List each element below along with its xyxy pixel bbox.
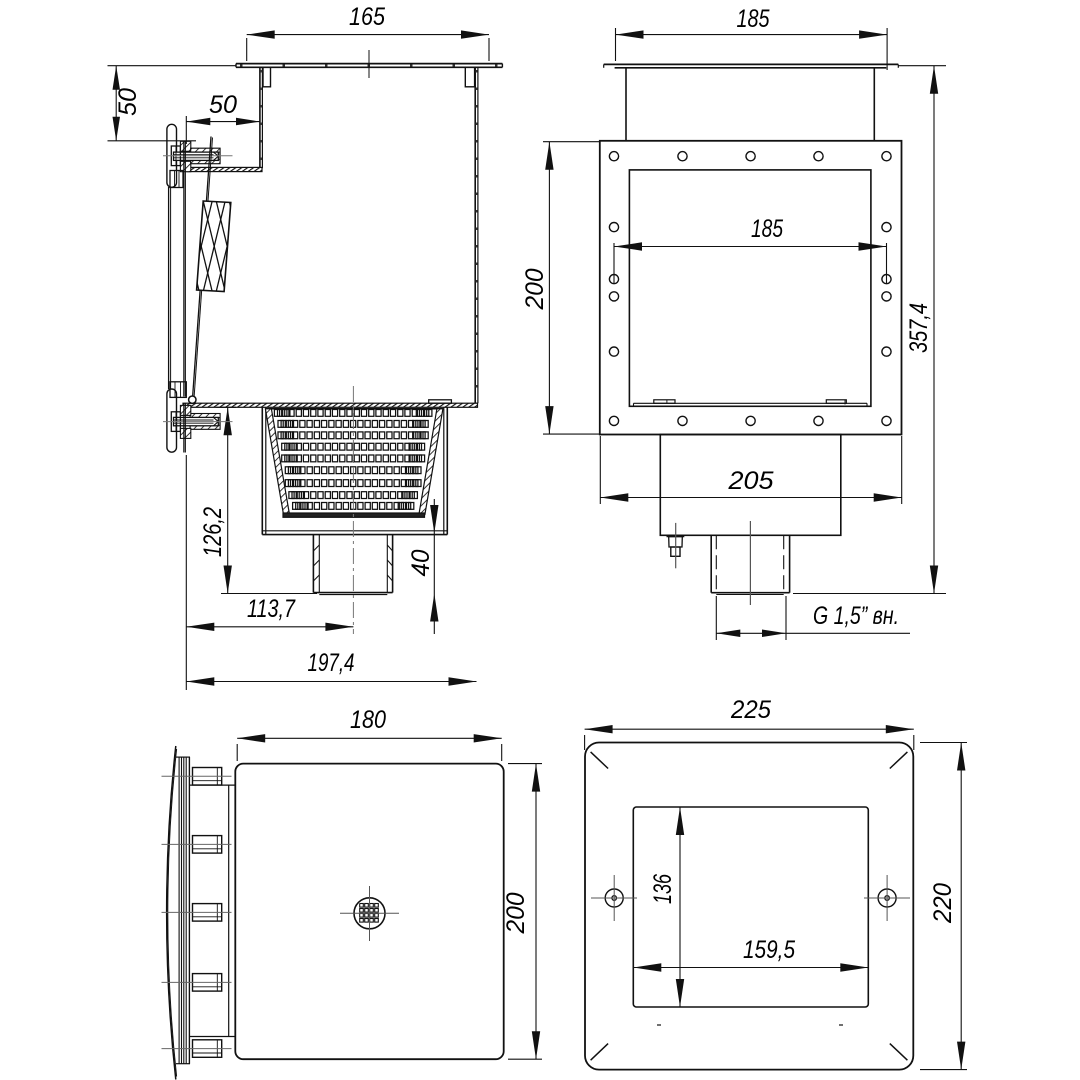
svg-text:197,4: 197,4 bbox=[308, 649, 355, 677]
svg-text:50: 50 bbox=[209, 91, 237, 119]
svg-text:G 1,5” вн.: G 1,5” вн. bbox=[813, 602, 899, 630]
svg-text:225: 225 bbox=[730, 696, 771, 724]
svg-text:205: 205 bbox=[727, 467, 773, 495]
svg-text:113,7: 113,7 bbox=[247, 595, 296, 623]
svg-text:50: 50 bbox=[114, 88, 142, 116]
svg-text:159,5: 159,5 bbox=[743, 936, 795, 964]
svg-text:200: 200 bbox=[521, 268, 549, 310]
svg-text:357,4: 357,4 bbox=[905, 303, 933, 353]
svg-text:185: 185 bbox=[737, 5, 770, 33]
svg-text:165: 165 bbox=[349, 3, 385, 31]
svg-text:200: 200 bbox=[502, 892, 530, 934]
svg-text:40: 40 bbox=[407, 549, 435, 576]
svg-text:136: 136 bbox=[649, 874, 677, 904]
svg-text:220: 220 bbox=[929, 883, 957, 924]
svg-text:126,2: 126,2 bbox=[199, 507, 227, 557]
svg-text:185: 185 bbox=[751, 215, 783, 243]
svg-text:180: 180 bbox=[350, 706, 386, 734]
